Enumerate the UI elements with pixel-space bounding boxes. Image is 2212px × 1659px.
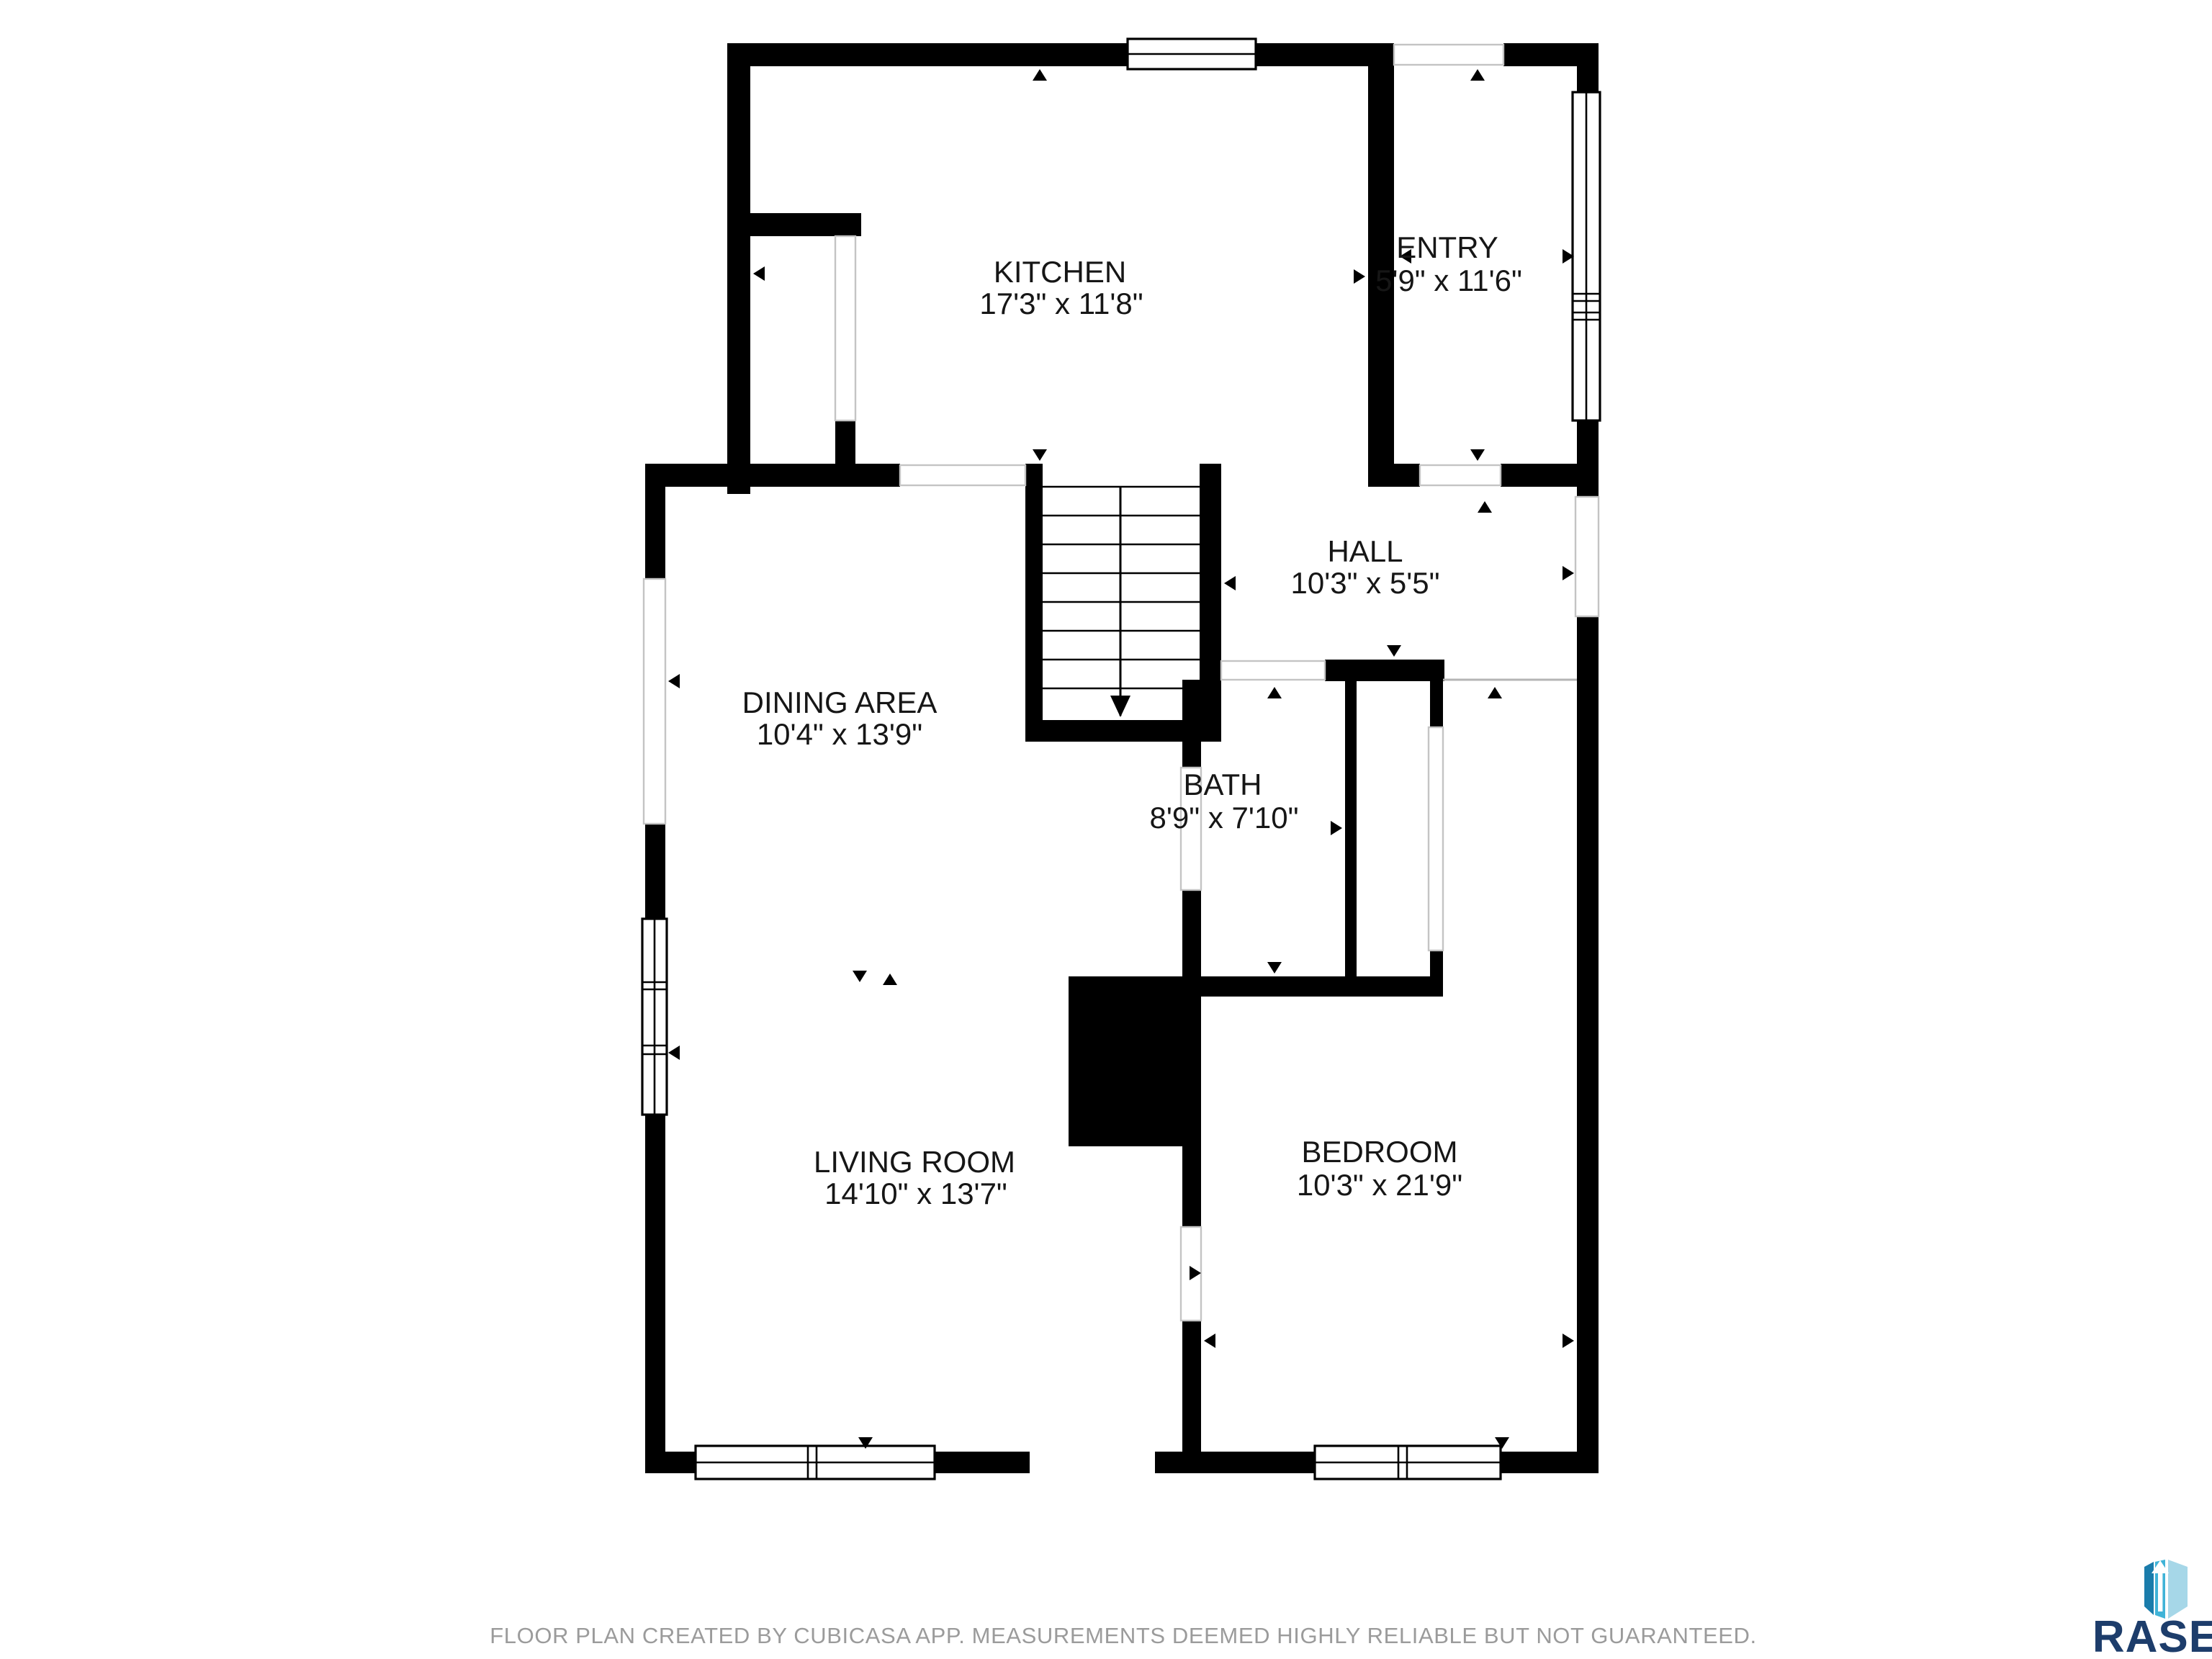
logo-left-face: [2144, 1562, 2154, 1615]
sliding-door-opening: [1429, 727, 1443, 950]
room-dimensions: 5'9" x 11'6": [1375, 264, 1522, 297]
room-label-dining: DINING AREA 10'4" x 13'9": [742, 685, 938, 751]
door-opening: [835, 236, 855, 421]
wall: [1182, 976, 1443, 997]
rase-logo-icon: [2144, 1560, 2188, 1619]
room-label-living: LIVING ROOM 14'10" x 13'7": [814, 1145, 1015, 1210]
room-name: ENTRY: [1396, 230, 1498, 264]
wall: [1368, 464, 1420, 487]
door-opening: [1221, 661, 1325, 680]
room-dimensions: 14'10" x 13'7": [824, 1177, 1007, 1210]
measurement-arrow-icon: [668, 1046, 680, 1060]
measurement-arrow-icon: [668, 674, 680, 688]
logo-up-arrow-icon: [2152, 1560, 2169, 1611]
wall: [1025, 464, 1043, 742]
fireplace-block: [1069, 976, 1201, 1146]
wall: [645, 1112, 665, 1473]
window: [642, 919, 667, 1115]
room-name: BATH: [1184, 768, 1262, 801]
measurement-arrow-icon: [753, 266, 765, 281]
room-dimensions: 8'9" x 7'10": [1150, 801, 1299, 835]
door-opening: [900, 465, 1025, 485]
measurement-arrow-icon: [1387, 645, 1401, 657]
rase-logo: RASE: [2092, 1560, 2212, 1659]
wall: [727, 43, 750, 494]
wall: [1182, 680, 1201, 768]
wall: [1577, 43, 1599, 92]
room-label-bath: BATH 8'9" x 7'10": [1150, 768, 1299, 835]
window: [1573, 92, 1600, 421]
window: [1128, 39, 1256, 69]
rase-logo-text: RASE: [2092, 1612, 2212, 1659]
door-opening: [1420, 465, 1501, 485]
wall: [727, 213, 861, 236]
room-dimensions: 10'3" x 21'9": [1297, 1168, 1462, 1202]
wall: [645, 824, 665, 922]
measurement-arrow-icon: [1033, 449, 1047, 461]
room-name: BEDROOM: [1301, 1135, 1457, 1169]
wall: [1325, 660, 1444, 681]
wall: [1182, 890, 1201, 976]
measurement-arrow-icon: [853, 971, 867, 982]
measurement-arrow-icon: [1224, 576, 1236, 590]
wall: [1430, 680, 1443, 727]
measurement-arrow-icon: [1563, 1334, 1574, 1348]
measurement-arrow-icon: [1488, 687, 1502, 698]
measurement-arrow-icon: [1267, 687, 1282, 698]
disclaimer-text: FLOOR PLAN CREATED BY CUBICASA APP. MEAS…: [490, 1623, 1756, 1648]
measurement-arrow-icon: [1331, 821, 1342, 835]
window: [1315, 1446, 1501, 1479]
measurement-arrow-icon: [1470, 449, 1485, 461]
measurement-arrow-icon: [1354, 269, 1365, 284]
room-dimensions: 10'4" x 13'9": [757, 717, 922, 751]
measurement-arrow-icon: [883, 974, 897, 985]
wall: [1577, 421, 1599, 497]
room-label-bedroom: BEDROOM 10'3" x 21'9": [1297, 1135, 1462, 1202]
room-name: LIVING ROOM: [814, 1145, 1015, 1179]
floor-plan-canvas: KITCHEN 17'3" x 11'8" ENTRY 5'9" x 11'6"…: [0, 0, 2212, 1659]
measurement-arrow-icon: [1478, 501, 1492, 513]
room-dimensions: 10'3" x 5'5": [1291, 566, 1440, 600]
room-name: KITCHEN: [994, 255, 1126, 289]
wall: [1200, 464, 1221, 742]
measurement-arrow-icon: [1563, 566, 1574, 580]
wall: [727, 464, 900, 487]
stairs: [1043, 487, 1200, 717]
room-name: DINING AREA: [742, 685, 938, 719]
stairs-down-arrow-icon: [1110, 598, 1130, 717]
door-opening: [1394, 45, 1503, 65]
room-label-hall: HALL 10'3" x 5'5": [1291, 534, 1440, 600]
room-name: HALL: [1327, 534, 1403, 568]
logo-right-face: [2168, 1560, 2188, 1619]
measurement-arrow-icon: [1470, 69, 1485, 81]
door-opening: [644, 579, 665, 824]
measurement-arrow-icon: [1033, 69, 1047, 81]
room-label-kitchen: KITCHEN 17'3" x 11'8": [979, 255, 1143, 320]
door-opening: [1575, 497, 1599, 616]
measurement-arrow-icon: [1204, 1334, 1215, 1348]
wall: [1182, 1321, 1201, 1473]
wall: [727, 43, 1394, 66]
wall: [1501, 464, 1577, 487]
wall: [1577, 616, 1599, 1473]
measurement-arrow-icon: [1267, 962, 1282, 974]
wall: [1430, 950, 1443, 976]
wall: [1345, 680, 1357, 976]
wall: [645, 475, 665, 579]
window: [696, 1446, 935, 1479]
room-dimensions: 17'3" x 11'8": [979, 287, 1143, 320]
room-label-entry: ENTRY 5'9" x 11'6": [1375, 230, 1522, 297]
